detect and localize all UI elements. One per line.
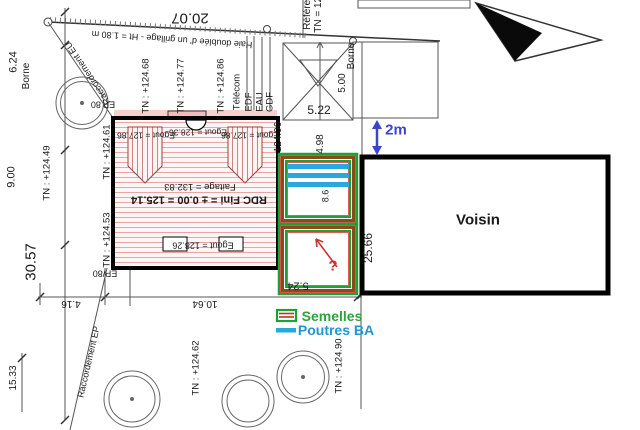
dim-north-boundary: 20.07	[171, 11, 209, 26]
dim-south-2: 10.64	[192, 298, 217, 308]
egout-left-label: Egout = 127.86	[117, 131, 175, 140]
gap-2m-label: 2m	[385, 123, 407, 138]
tn-label-7: TN : +124.62	[191, 340, 201, 395]
edf-label: EDF	[244, 93, 254, 112]
site-plan-drawing	[0, 0, 640, 430]
dim-west-3: 15.33	[9, 365, 19, 390]
tn-label-2: TN : +124.77	[176, 58, 186, 113]
dim-west-1: 6.24	[9, 51, 20, 72]
voisin-label: Voisin	[456, 213, 500, 228]
dim-voisin-side: 25.66	[362, 233, 374, 263]
poutres-beams	[287, 164, 349, 187]
borne-east-label: Borne	[347, 43, 357, 70]
question-mark-label: ?	[328, 259, 337, 274]
tn-label-6: TN : +124.53	[102, 212, 112, 267]
tn-label-4: TN : +124.49	[42, 145, 52, 200]
north-arrow-icon	[476, 3, 601, 61]
gap-2m-arrow	[372, 120, 382, 155]
legend-semelles-label: Semelles	[302, 309, 363, 323]
egout-right-label: Egout = 127.86	[221, 131, 279, 140]
dim-east-1: 5.22	[307, 104, 330, 116]
tn-label-5: TN : +124.61	[102, 124, 112, 179]
dim-west-2: 9.00	[7, 166, 18, 187]
dim-east-2: 5.00	[338, 73, 348, 92]
semelles-swatch	[277, 310, 296, 321]
reference-tn-label: TN = 125	[314, 0, 324, 33]
legend-swatches	[276, 310, 296, 333]
tn-label-1: TN : +124.68	[141, 58, 151, 113]
ep-bottom-label: EP/80	[93, 269, 118, 278]
dim-foundation-width: 5.24	[287, 280, 308, 291]
tn-label-8: TN : +124.90	[334, 338, 344, 393]
dim-south-1: 4.16	[61, 298, 80, 308]
faitage-label: Faitage = 132.83	[164, 181, 236, 191]
egout-bottom-label: Egout = 128.26	[172, 241, 233, 250]
borne-west-label: Borne	[22, 63, 32, 90]
dim-foundation-side: 8.6	[322, 190, 331, 203]
egout-mid-label: Egout = 128.36	[169, 128, 227, 137]
telecom-label: Télécom	[232, 74, 242, 110]
site-plan: 20.07 Haie doublée d' un grillage - Ht =…	[0, 0, 640, 430]
reference-label: Référen	[303, 0, 313, 30]
poutres-swatch	[276, 328, 296, 333]
tn-label-3: TN : +124.86	[216, 58, 226, 113]
dim-west-total: 30.57	[24, 243, 39, 281]
legend-poutres-label: Poutres BA	[298, 323, 374, 337]
tn-label-10: 4.98	[316, 134, 326, 153]
gdf-label: GDF	[265, 92, 275, 112]
rdc-fini-label: RDC Fini = ± 0.00 = 125.14	[131, 194, 267, 205]
